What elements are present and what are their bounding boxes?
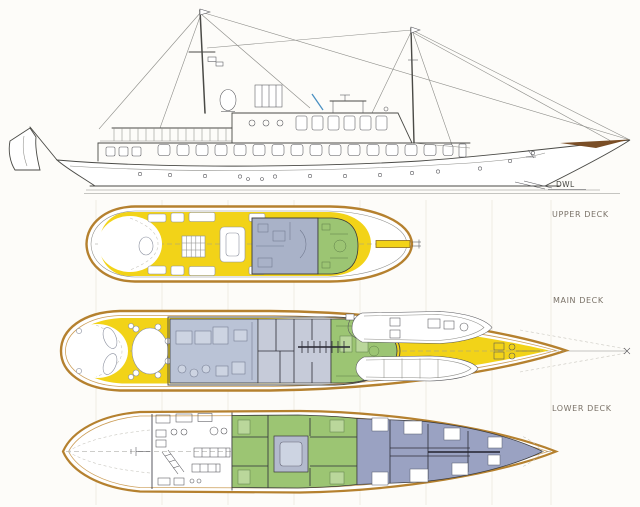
antenna-blue: [312, 94, 323, 110]
bow-walkway: [376, 240, 421, 249]
stern-flag: [9, 127, 57, 170]
dinghy-boat: [356, 356, 478, 381]
main-mast: [189, 9, 223, 113]
dwl-label: DWL: [556, 180, 575, 189]
boat-deck-gear: [220, 85, 388, 113]
main-windows: [106, 144, 466, 157]
main-deck-plan: [61, 311, 630, 391]
tender-boat: [352, 312, 492, 344]
yacht-ga-drawing: DWL: [0, 0, 640, 507]
radar-arch: [330, 95, 366, 113]
upper-deck-plan: [87, 207, 422, 282]
main-deck-label: MAIN DECK: [553, 296, 604, 305]
fore-mast: [408, 27, 420, 143]
lower-deck-label: LOWER DECK: [552, 404, 612, 413]
drawing-sheet: DWL: [0, 0, 640, 507]
hull-profile: [57, 140, 630, 186]
skylight-grid: [182, 236, 205, 257]
engine-casing: [274, 436, 308, 472]
lower-cabin-area: [357, 418, 543, 485]
lower-green-area: [232, 415, 357, 488]
lower-deck-plan: [63, 411, 556, 493]
bridge-room: [252, 218, 318, 274]
aft-table: [132, 328, 168, 374]
radar-dome: [220, 90, 236, 111]
bridge-windows: [249, 116, 387, 130]
skylight-frame: [255, 85, 282, 107]
aft-railing: [100, 128, 232, 141]
salon: [170, 319, 258, 383]
upper-deck-label: UPPER DECK: [552, 210, 609, 219]
profile-view: DWL: [9, 9, 630, 194]
upper-green-room: [318, 218, 358, 274]
